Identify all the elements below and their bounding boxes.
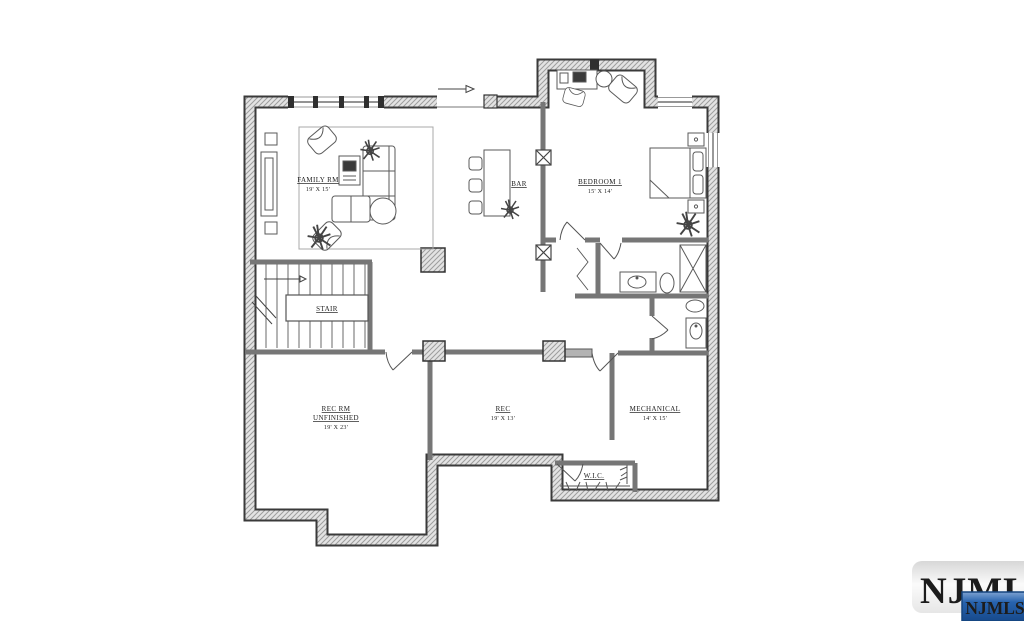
bathroom-main: [620, 245, 706, 293]
stair-label: STAIR: [316, 305, 338, 313]
wall-post: [590, 59, 599, 70]
floorplan-page: STAIR FAMILY RM 19' X 15': [0, 0, 1024, 621]
desk-chair: [562, 87, 586, 108]
stair-area: STAIR: [252, 264, 368, 348]
njmls-badge: NJMLS: [962, 592, 1024, 621]
toilet: [686, 300, 704, 312]
rec-rm-dims: 19' X 23': [324, 425, 348, 431]
bed: [650, 148, 706, 198]
wic-area: W.I.C.: [560, 465, 630, 491]
family-room-dims: 19' X 15': [306, 187, 330, 193]
rec-rm-labels: REC RM UNFINISHED 19' X 23': [313, 405, 359, 431]
rec-label: REC: [496, 405, 511, 413]
family-room: FAMILY RM 19' X 15': [261, 124, 433, 252]
rec-rm-status: UNFINISHED: [313, 414, 359, 422]
rec-labels: REC 19' X 13': [491, 405, 515, 422]
window-top-family: [288, 95, 384, 109]
bar-area: BAR: [469, 150, 527, 219]
bar-label: BAR: [511, 180, 527, 188]
bar-stools: [469, 157, 482, 214]
entry-arrow-icon: [438, 86, 474, 93]
rec-dims: 19' X 13': [491, 416, 515, 422]
floorplan-canvas: STAIR FAMILY RM 19' X 15': [0, 0, 1024, 621]
desk: [557, 70, 597, 89]
entry-opening: [437, 86, 497, 111]
family-room-label: FAMILY RM: [297, 176, 339, 184]
rec-rm-label: REC RM: [322, 405, 351, 413]
coffee-table: [339, 156, 360, 185]
bedroom1-dims: 15' X 14': [588, 189, 612, 195]
mechanical-dims: 14' X 15': [643, 416, 667, 422]
mechanical-label: MECHANICAL: [630, 405, 681, 413]
window-bedroom-top: [658, 96, 692, 109]
window-bedroom-right: [707, 133, 720, 167]
mechanical-labels: MECHANICAL 14' X 15': [630, 405, 681, 422]
bedroom1-label: BEDROOM 1: [578, 178, 622, 186]
njmls-watermark: NJMLS NJMLS: [912, 561, 1024, 621]
media-console: [261, 133, 277, 234]
toilet: [660, 273, 674, 293]
bathroom-small: [686, 300, 706, 348]
round-ottoman: [370, 198, 396, 224]
bedroom1: BEDROOM 1 15' X 14': [557, 70, 706, 236]
wic-label: W.I.C.: [584, 472, 605, 480]
bar-island: [484, 150, 510, 216]
badge-text: NJMLS: [965, 598, 1024, 618]
